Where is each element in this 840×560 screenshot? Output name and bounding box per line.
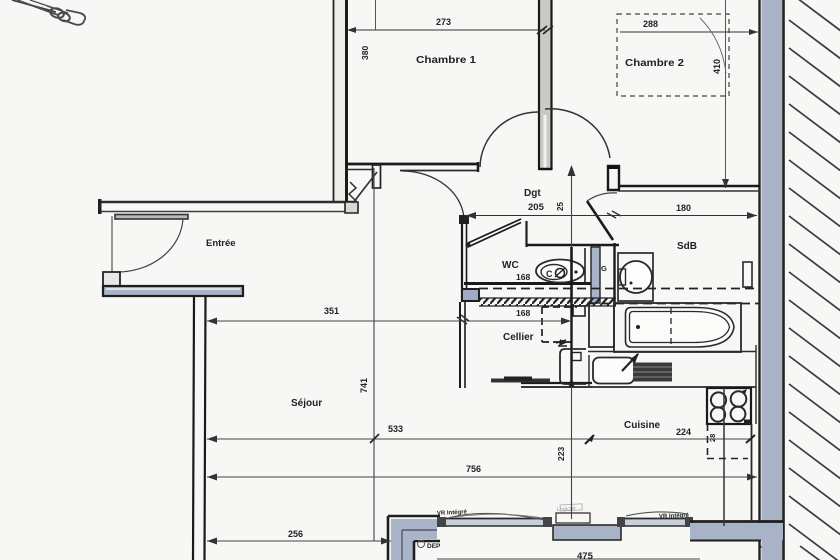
svg-text:273: 273 xyxy=(436,17,451,27)
svg-text:G: G xyxy=(601,264,607,273)
svg-text:WC: WC xyxy=(502,260,519,271)
svg-text:C: C xyxy=(546,269,553,279)
svg-text:256: 256 xyxy=(288,529,303,539)
svg-text:28: 28 xyxy=(708,434,717,442)
svg-text:VR Intégré: VR Intégré xyxy=(659,513,690,520)
svg-text:223: 223 xyxy=(556,447,566,461)
svg-text:180: 180 xyxy=(676,203,691,213)
svg-text:741: 741 xyxy=(359,378,369,393)
svg-text:DEP: DEP xyxy=(427,543,441,550)
svg-text:Logiciel: Logiciel xyxy=(557,506,576,513)
svg-text:Cuisine: Cuisine xyxy=(624,420,661,431)
svg-text:Cellier: Cellier xyxy=(503,332,534,343)
svg-text:756: 756 xyxy=(466,464,481,474)
svg-text:168: 168 xyxy=(516,308,530,318)
svg-text:351: 351 xyxy=(324,306,339,316)
svg-text:533: 533 xyxy=(388,424,403,434)
svg-text:SdB: SdB xyxy=(677,241,697,252)
svg-text:410: 410 xyxy=(712,59,722,74)
svg-text:Chambre 2: Chambre 2 xyxy=(625,57,684,69)
svg-text:Dgt: Dgt xyxy=(524,188,541,199)
svg-text:168: 168 xyxy=(516,272,530,282)
svg-text:Chambre 1: Chambre 1 xyxy=(416,54,476,66)
svg-text:475: 475 xyxy=(577,551,594,560)
svg-text:205: 205 xyxy=(528,202,545,213)
svg-text:380: 380 xyxy=(360,46,370,60)
svg-text:288: 288 xyxy=(643,19,658,29)
svg-text:25: 25 xyxy=(556,202,565,211)
svg-text:224: 224 xyxy=(676,427,691,437)
svg-text:Séjour: Séjour xyxy=(291,398,322,409)
svg-text:Entrée: Entrée xyxy=(206,238,236,249)
